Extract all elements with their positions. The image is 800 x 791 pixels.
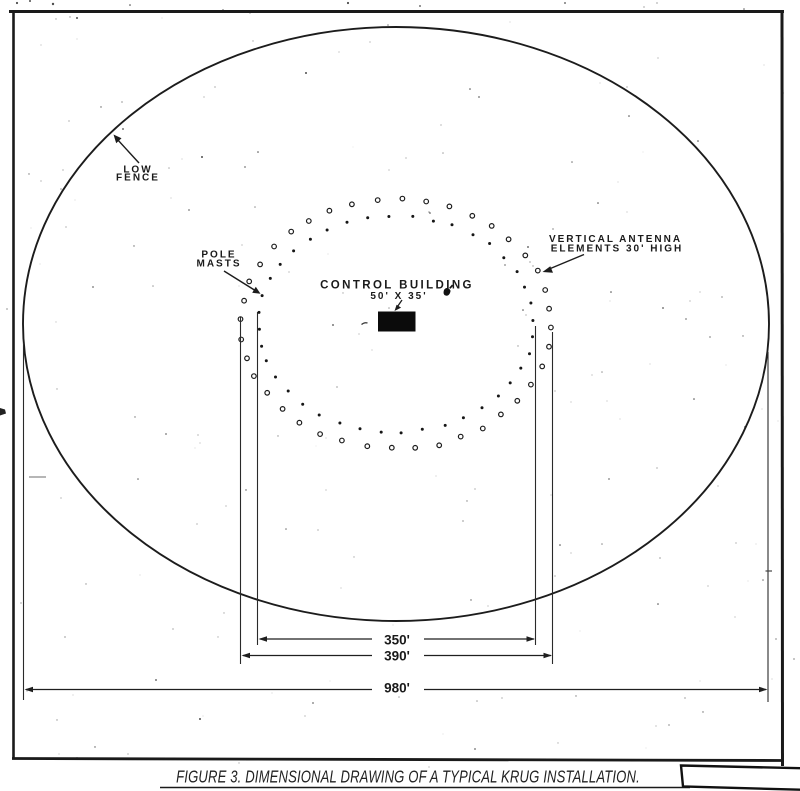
svg-text:MASTS: MASTS [197,259,242,270]
svg-text:980': 980' [384,681,410,696]
svg-text:390': 390' [384,649,410,664]
svg-text:350': 350' [384,633,410,648]
svg-text:FENCE: FENCE [116,173,160,184]
svg-text:FIGURE 3. DIMENSIONAL DRAWING: FIGURE 3. DIMENSIONAL DRAWING OF A TYPIC… [176,768,640,787]
svg-text:ELEMENTS 30' HIGH: ELEMENTS 30' HIGH [551,243,684,254]
svg-text:CONTROL BUILDING: CONTROL BUILDING [320,280,474,292]
svg-text:50' X 35': 50' X 35' [370,291,427,302]
